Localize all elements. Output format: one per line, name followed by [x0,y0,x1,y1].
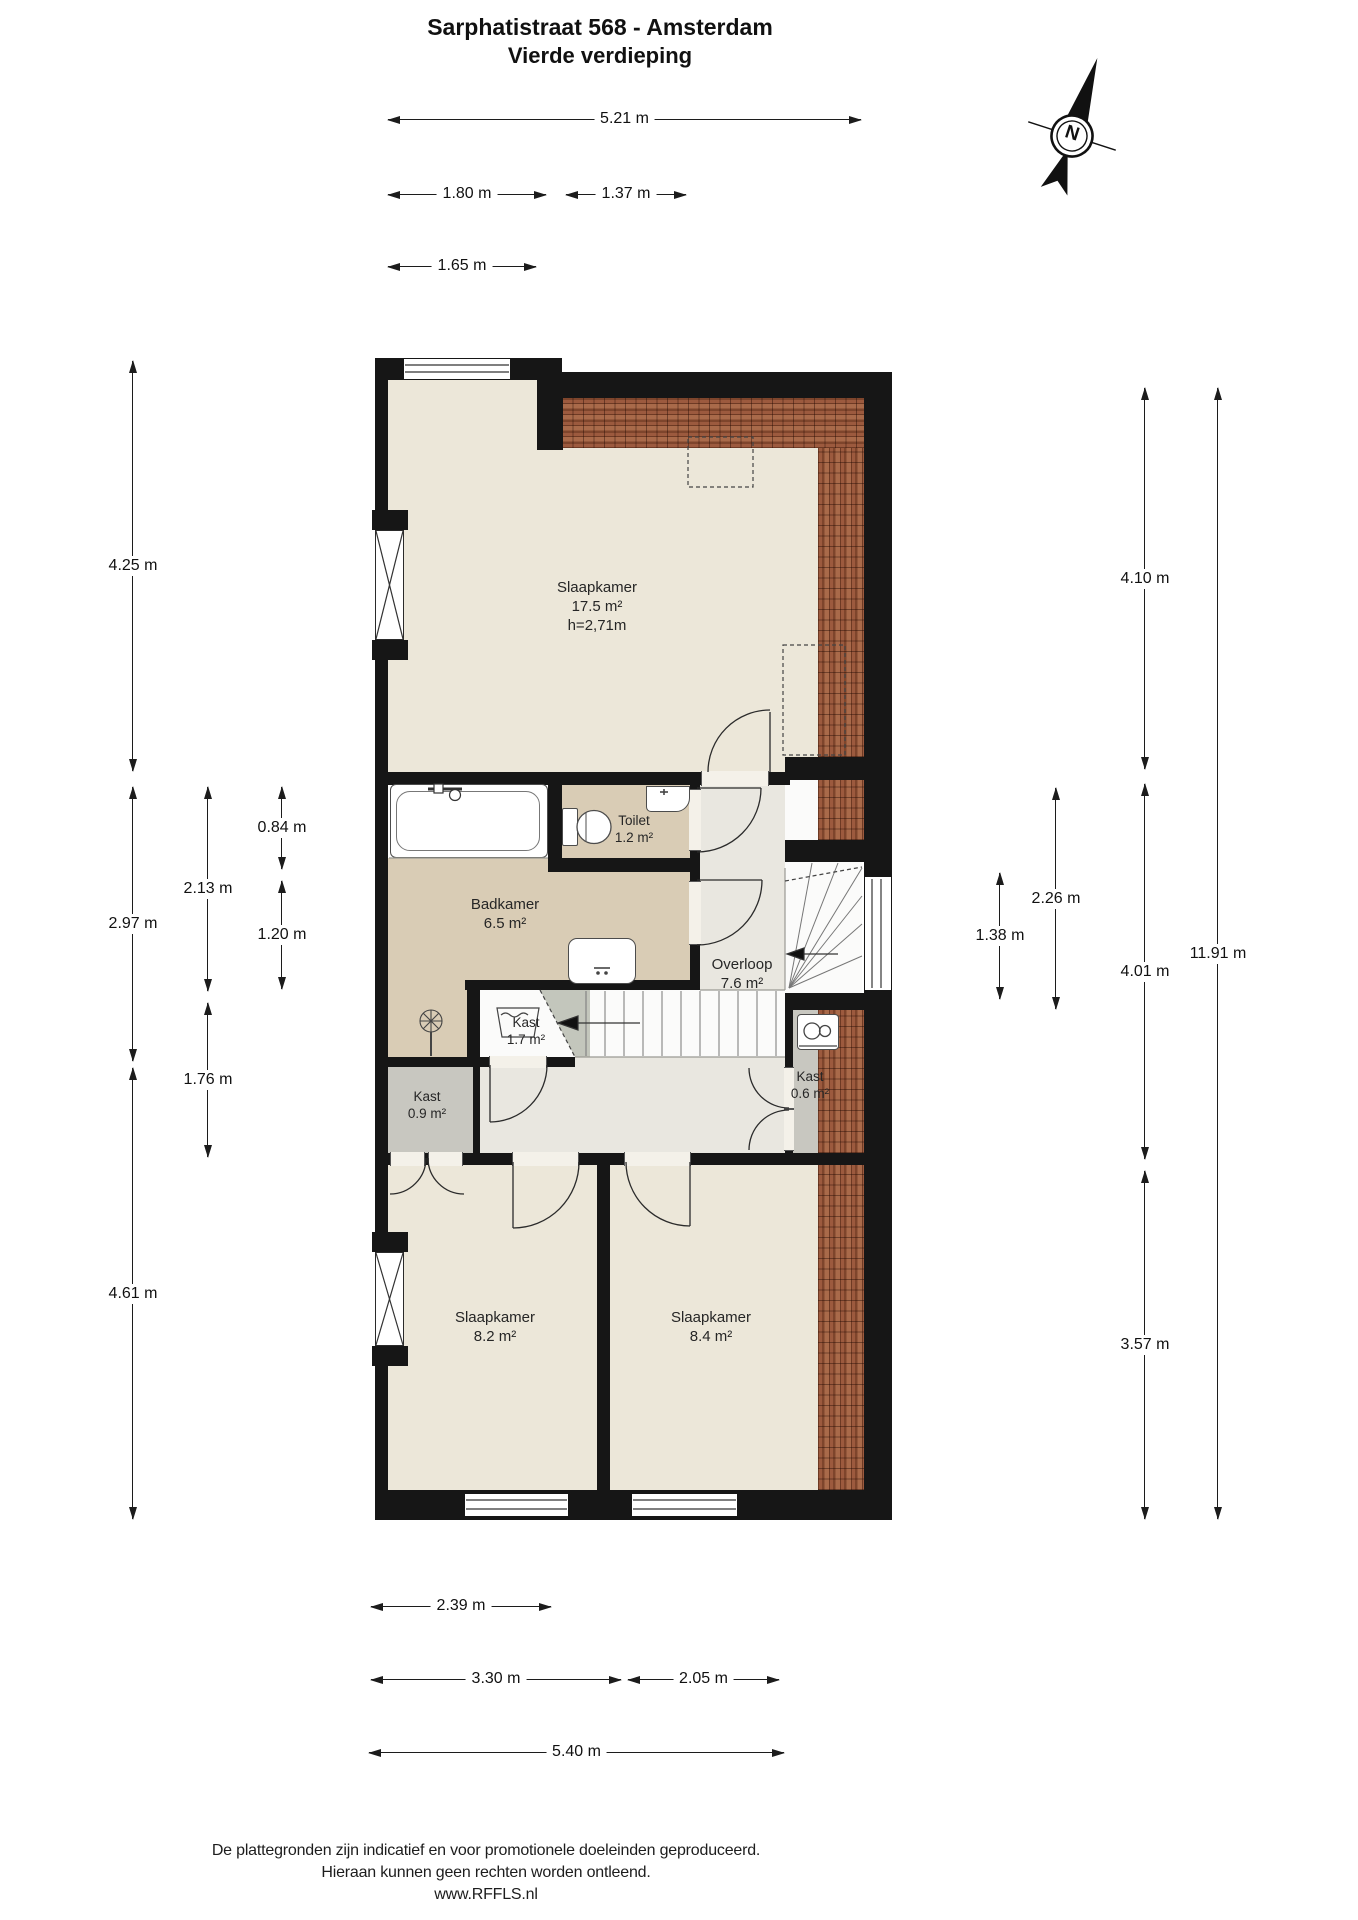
footer-line-2: Hieraan kunnen geen rechten worden ontle… [136,1862,836,1884]
wall-bath-toilet [548,782,562,862]
title-address: Sarphatistraat 568 - Amsterdam [300,13,900,42]
room-area: 0.6 m² [760,1085,860,1102]
door-opening-badkamer [689,881,701,945]
window-bottom-2 [632,1493,737,1517]
room-area: 7.6 m² [672,974,812,993]
wall-toilet-south [548,858,700,872]
floor-badkamer-leg [388,980,467,1057]
badkamer-sink [568,938,636,984]
room-area: 6.5 m² [425,914,585,933]
window-left-1-jamb-top [372,510,408,530]
room-name: Badkamer [425,895,585,914]
window-left-2-jamb-bottom [372,1346,408,1366]
label-overloop: Overloop 7.6 m² [672,955,812,993]
footer-disclaimer: De plattegronden zijn indicatief en voor… [136,1840,836,1906]
room-name: Overloop [672,955,812,974]
toilet-basin [646,786,690,812]
compass-north-letter: N [1056,120,1088,149]
window-left-1-jamb-bottom [372,640,408,660]
wall-stairwell-top [785,840,892,862]
label-kast-3: Kast 0.6 m² [760,1068,860,1102]
room-area: 1.2 m² [562,829,706,846]
room-name: Toilet [562,812,706,829]
room-area: 8.2 m² [415,1327,575,1346]
window-left-1 [375,530,404,640]
roof-band-top [562,398,864,448]
label-kast-2: Kast 0.9 m² [377,1088,477,1122]
floor-stairwell-void [785,780,820,840]
label-badkamer: Badkamer 6.5 m² [425,895,585,933]
room-area: 0.9 m² [377,1105,477,1122]
room-name: Kast [760,1068,860,1085]
floor-stairs-run [568,990,785,1057]
bathtub-inner [396,791,540,851]
room-name: Slaapkamer [631,1308,791,1327]
room-name: Slaapkamer [497,578,697,597]
room-area: 8.4 m² [631,1327,791,1346]
door-opening-kast-2b [428,1152,463,1166]
wall-roof-separator-1 [785,757,892,780]
door-opening-slaapkamer-groot [701,771,769,786]
label-slaapkamer-rechts: Slaapkamer 8.4 m² [631,1308,791,1346]
door-opening-slaapkamer-links [512,1152,579,1166]
room-name: Kast [377,1088,477,1105]
wall-bedrooms-divider [597,1153,610,1490]
window-stairwell [864,877,892,990]
page-title: Sarphatistraat 568 - Amsterdam Vierde ve… [300,13,900,69]
window-left-2 [375,1252,404,1346]
door-opening-kast-3b [784,1109,794,1151]
room-area: 1.7 m² [476,1031,576,1048]
label-slaapkamer-groot: Slaapkamer 17.5 m² h=2,71m [497,578,697,635]
room-name: Slaapkamer [415,1308,575,1327]
door-opening-slaapkamer-rechts [624,1152,691,1166]
wall-top-right [562,372,864,398]
label-toilet: Toilet 1.2 m² [562,812,706,846]
room-area: 17.5 m² [497,597,697,616]
wall-top-step [537,380,563,450]
window-left-2-jamb-top [372,1232,408,1252]
label-slaapkamer-links: Slaapkamer 8.2 m² [415,1308,575,1346]
window-top [404,358,510,380]
footer-line-1: De plattegronden zijn indicatief en voor… [136,1840,836,1862]
floor-overloop-lower [480,1057,700,1153]
boiler-unit [797,1014,839,1050]
roof-band-right-1 [818,448,864,757]
roof-band-right-4 [818,1165,864,1490]
window-bottom-1 [465,1493,568,1517]
label-kast-1: Kast 1.7 m² [476,1014,576,1048]
floorplan-page: Slaapkamer 17.5 m² h=2,71m Toilet 1.2 m²… [0,0,1358,1920]
title-floor: Vierde verdieping [300,42,900,69]
roof-band-right-2 [818,780,864,840]
footer-website: www.RFFLS.nl [136,1884,836,1906]
wall-kast3-north [785,993,864,1010]
door-opening-kast-2a [390,1152,425,1166]
door-opening-kast-1 [489,1056,547,1068]
room-ceiling-height: h=2,71m [497,616,697,635]
room-name: Kast [476,1014,576,1031]
